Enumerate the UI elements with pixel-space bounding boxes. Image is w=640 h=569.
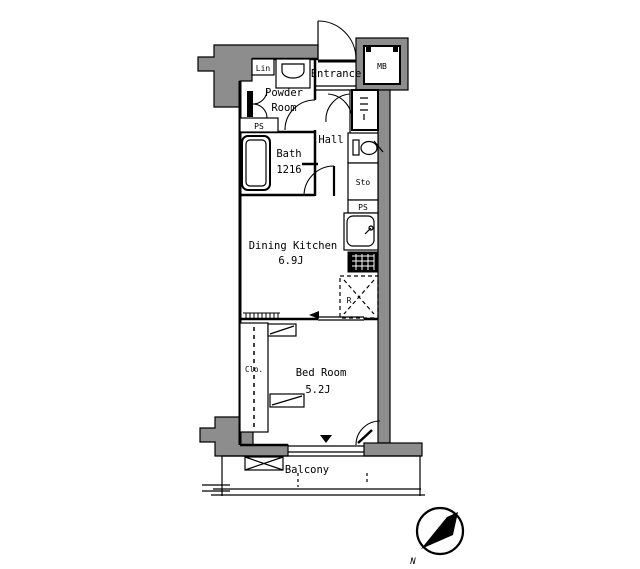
wall-right (378, 90, 390, 443)
balcony-window (288, 446, 364, 452)
ps-lower-label: PS (358, 203, 368, 212)
mb-corner-mark (366, 47, 371, 52)
toilet-tank (353, 140, 359, 155)
bath-folding-door (247, 91, 253, 117)
pipe-space-lower: PS (348, 200, 378, 213)
refrigerator-space: R (340, 276, 378, 318)
bathtub-inner (246, 140, 266, 186)
storage: Sto (348, 163, 378, 200)
compass-north-label: N (409, 557, 416, 567)
floor-plan-drawing: MB Lin Powder Room (0, 0, 640, 569)
hall-dk-door-arc (304, 166, 334, 196)
linen-label: Lin (256, 64, 271, 73)
vanity-sink (276, 59, 310, 88)
dining-kitchen-size-label: 6.9J (278, 255, 303, 267)
closet-door-panel (270, 394, 304, 407)
dining-kitchen-label: Dining Kitchen (249, 240, 338, 252)
ps-upper-label: PS (254, 122, 264, 131)
bed-room-size-label: 5.2J (305, 384, 330, 396)
compass-needle-icon (421, 512, 458, 549)
entrance-label: Entrance (311, 68, 362, 80)
window-arrow-icon (320, 435, 332, 443)
balcony-hatch-box (245, 457, 283, 470)
toilet-room (348, 133, 383, 163)
kitchen-sink-unit (344, 213, 378, 250)
pipe-space-upper: PS (240, 118, 278, 132)
powder-room-label-1: Powder (265, 87, 303, 99)
kitchen-sink (347, 216, 374, 246)
bath-label: Bath (276, 148, 301, 160)
balcony-railing (202, 485, 425, 495)
entrance-step-lines (315, 86, 356, 90)
closet-label: Clo. (245, 365, 263, 374)
shoe-cabinet (352, 90, 378, 130)
refrigerator-label: R (347, 296, 352, 305)
closet: Clo. (240, 323, 268, 432)
balcony: Balcony (202, 456, 425, 496)
bed-room: Bed Room 5.2J Clo. (240, 323, 364, 452)
bath-room: Bath 1216 (242, 136, 302, 190)
meter-box-label: MB (377, 62, 387, 71)
wall-block-bottom-right (364, 443, 422, 456)
powder-room-label-2: Room (271, 102, 296, 114)
balcony-label: Balcony (285, 464, 329, 476)
closet-door-panel (268, 324, 296, 336)
compass: N (409, 508, 463, 567)
hall-label: Hall (318, 134, 343, 146)
closet-top-teeth (246, 313, 278, 318)
mb-corner-mark (393, 47, 398, 52)
stove (348, 252, 378, 272)
storage-label: Sto (356, 178, 371, 187)
floor-plan-page: MB Lin Powder Room (0, 0, 640, 569)
entrance-door-arc (318, 21, 356, 59)
meter-box: MB (364, 46, 400, 84)
bed-room-label: Bed Room (296, 367, 347, 379)
toilet-bowl (361, 142, 377, 155)
bath-size-label: 1216 (276, 164, 301, 176)
wc-door-arcs (326, 94, 352, 122)
